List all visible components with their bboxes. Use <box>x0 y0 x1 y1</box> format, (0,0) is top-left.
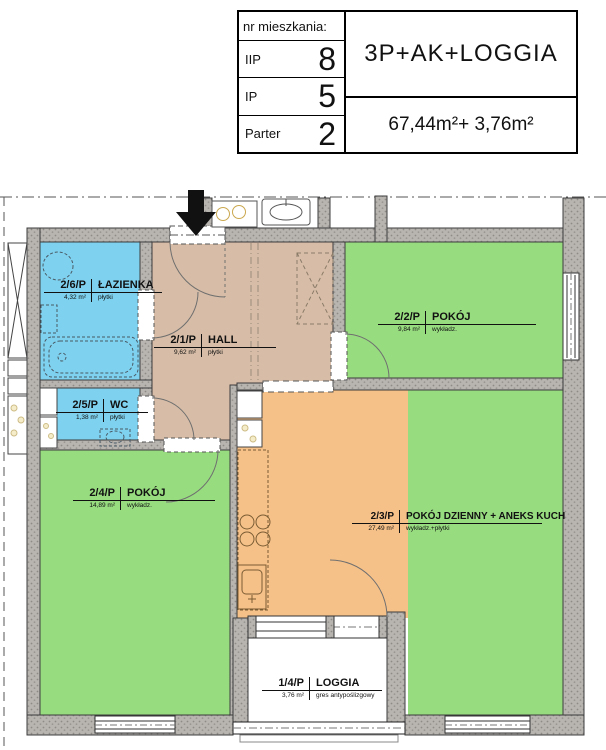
balcony-door-window <box>248 616 387 638</box>
loggia-balustrade <box>233 722 405 742</box>
shaft-gravel-box <box>8 396 27 454</box>
wall-hall-bedroom2 <box>333 242 345 334</box>
hall-area <box>152 242 333 385</box>
wall-bath-wc <box>40 380 152 388</box>
floor-plan-page: nr mieszkania: IIP 8 IP 5 Parter 2 3P+AK… <box>0 0 606 750</box>
bedroom2-door <box>331 332 347 380</box>
room-label-pokoj4: 2/4/PPOKÓJ 14,89 m²wykładz. <box>73 487 215 510</box>
wall-loggia-left <box>233 618 248 734</box>
wall-stub-2 <box>318 198 330 228</box>
wall-loggia-right <box>387 612 405 734</box>
room-label-loggia: 1/4/PLOGGIA 3,76 m²gres antypoślizgowy <box>262 677 382 700</box>
wall-left <box>27 228 40 735</box>
kitchen-shaft-top <box>237 391 262 418</box>
room-label-pokoj2: 2/2/PPOKÓJ 9,84 m²wykładz. <box>378 311 536 334</box>
kitchen-annex-area <box>237 390 408 618</box>
wc-shaft-top <box>40 388 57 415</box>
neighbour-sink-icon <box>212 201 257 227</box>
room-label-wc: 2/5/PWC 1,38 m²płytki <box>56 399 148 422</box>
wall-above-shaft <box>237 383 263 390</box>
room-label-dzienny: 2/3/PPOKÓJ DZIENNY + ANEKS KUCH 27,49 m²… <box>352 510 542 533</box>
wall-top-right <box>225 228 563 242</box>
wall-top-left <box>27 228 170 242</box>
bedroom4-door <box>164 438 220 452</box>
room-label-lazienka: 2/6/PŁAZIENKA 4,32 m²płytki <box>44 279 162 302</box>
bedroom4-window <box>95 716 175 733</box>
floor-plan-drawing <box>0 0 606 750</box>
bathroom-area <box>40 242 140 380</box>
neighbour-fixtures <box>212 199 310 227</box>
bedroom2-window <box>563 273 579 360</box>
wall-below-bedroom2 <box>333 378 563 390</box>
wc-shaft-bottom <box>40 417 57 448</box>
living-room-area <box>408 390 563 715</box>
bedroom2-area <box>345 242 563 378</box>
living-room-opening <box>263 381 333 392</box>
room-label-hall: 2/1/PHALL 9,62 m²płytki <box>154 334 276 357</box>
kitchen-shaft-bottom <box>237 420 262 447</box>
living-room-window <box>445 716 530 733</box>
wall-stub-3 <box>375 196 387 242</box>
hall-area-lower <box>152 385 230 447</box>
wall-bathroom-lower <box>140 338 152 380</box>
